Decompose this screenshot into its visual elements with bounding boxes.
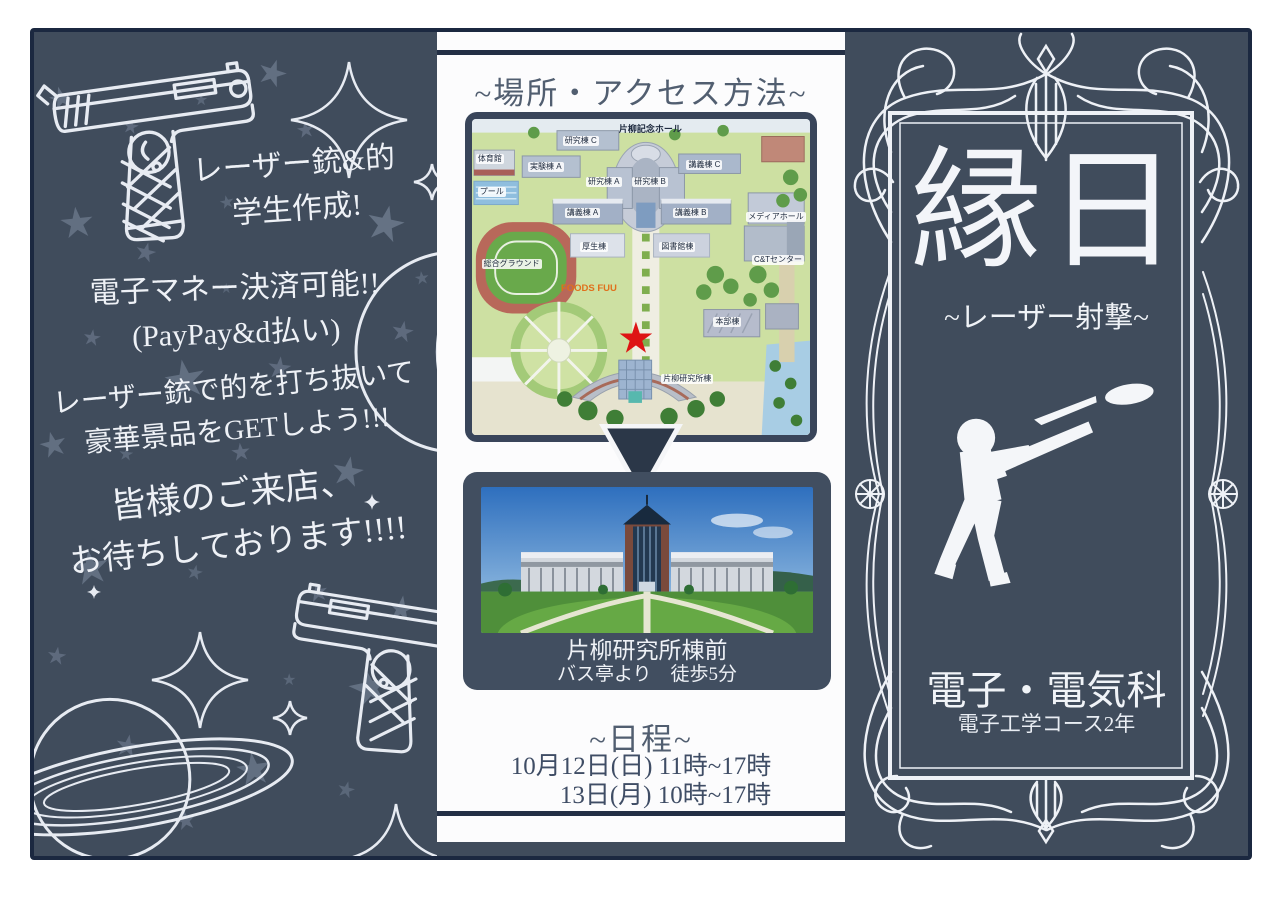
star-icon: ★ bbox=[44, 643, 69, 670]
bottom-rule bbox=[437, 811, 845, 816]
event-subtitle: ~レーザー射撃~ bbox=[845, 294, 1248, 336]
map-label: 研究棟 A bbox=[586, 177, 622, 187]
schedule: 10月12日(日) 11時~17時 13日(月) 10時~17時 bbox=[437, 752, 845, 810]
photo-caption-access: バス亭より 徒歩5分 bbox=[481, 664, 813, 686]
map-label: 研究棟 B bbox=[632, 177, 668, 187]
map-label: C&Tセンター bbox=[752, 255, 804, 265]
clay-shooter-icon bbox=[909, 358, 1181, 610]
map-label: 講義棟 C bbox=[686, 160, 722, 170]
map-label: 講義棟 A bbox=[565, 208, 601, 218]
course-name: 電子工学コース2年 bbox=[845, 708, 1248, 738]
schedule-day1: 10月12日(日) 11時~17時 bbox=[511, 752, 772, 781]
map-label: メディアホール bbox=[746, 212, 805, 222]
svg-text:★: ★ bbox=[617, 313, 655, 363]
campus-map: ★ 体育館プール実験棟 A研究棟 C片柳記念ホール研究棟 A研究棟 B講義棟 C… bbox=[472, 119, 810, 435]
schedule-day2: 13日(月) 10時~17時 bbox=[511, 781, 772, 810]
map-label: FOODS FUU bbox=[559, 284, 619, 294]
festival-flyer: ★★★★★★★★★★★★★★★★★★★★★★★★★★★★★★ bbox=[30, 28, 1252, 860]
sparkle-icon bbox=[87, 585, 101, 599]
building-photo bbox=[481, 487, 813, 633]
map-label: 体育館 bbox=[476, 154, 504, 164]
campus-map-card: ★ 体育館プール実験棟 A研究棟 C片柳記念ホール研究棟 A研究棟 B講義棟 C… bbox=[465, 112, 817, 442]
map-label: 実験棟 A bbox=[528, 162, 564, 172]
map-label: 総合グラウンド bbox=[482, 259, 542, 269]
map-label: 研究棟 C bbox=[563, 136, 599, 146]
photo-caption-location: 片柳研究所棟前 bbox=[481, 638, 813, 664]
center-panel: ~場所・アクセス方法~ bbox=[437, 32, 845, 842]
map-label: プール bbox=[478, 187, 506, 197]
event-title: 縁日 bbox=[845, 132, 1248, 292]
access-heading: ~場所・アクセス方法~ bbox=[437, 68, 845, 113]
saturn-icon bbox=[34, 646, 329, 856]
right-panel: 縁日 ~レーザー射撃~ 電子・電気科 電子工学コース2年 bbox=[845, 32, 1248, 856]
sparkle-icon bbox=[340, 804, 437, 856]
campus-map-illustration: ★ bbox=[472, 119, 810, 435]
star-icon: ★ bbox=[334, 778, 358, 804]
map-label: 片柳研究所棟 bbox=[661, 374, 713, 384]
map-label: 講義棟 B bbox=[673, 208, 709, 218]
promo-epay-accepted: 電子マネー決済可能!! (PayPay&d払い) bbox=[34, 259, 437, 363]
map-label: 本部棟 bbox=[713, 317, 741, 327]
map-label: 片柳記念ホール bbox=[617, 124, 684, 134]
left-panel: ★★★★★★★★★★★★★★★★★★★★★★★★★★★★★★ bbox=[34, 32, 437, 856]
building-photo-card: 片柳研究所棟前 バス亭より 徒歩5分 bbox=[463, 472, 831, 690]
top-rule bbox=[437, 50, 845, 55]
map-label: 図書館棟 bbox=[659, 242, 695, 252]
map-label: 厚生棟 bbox=[580, 242, 608, 252]
